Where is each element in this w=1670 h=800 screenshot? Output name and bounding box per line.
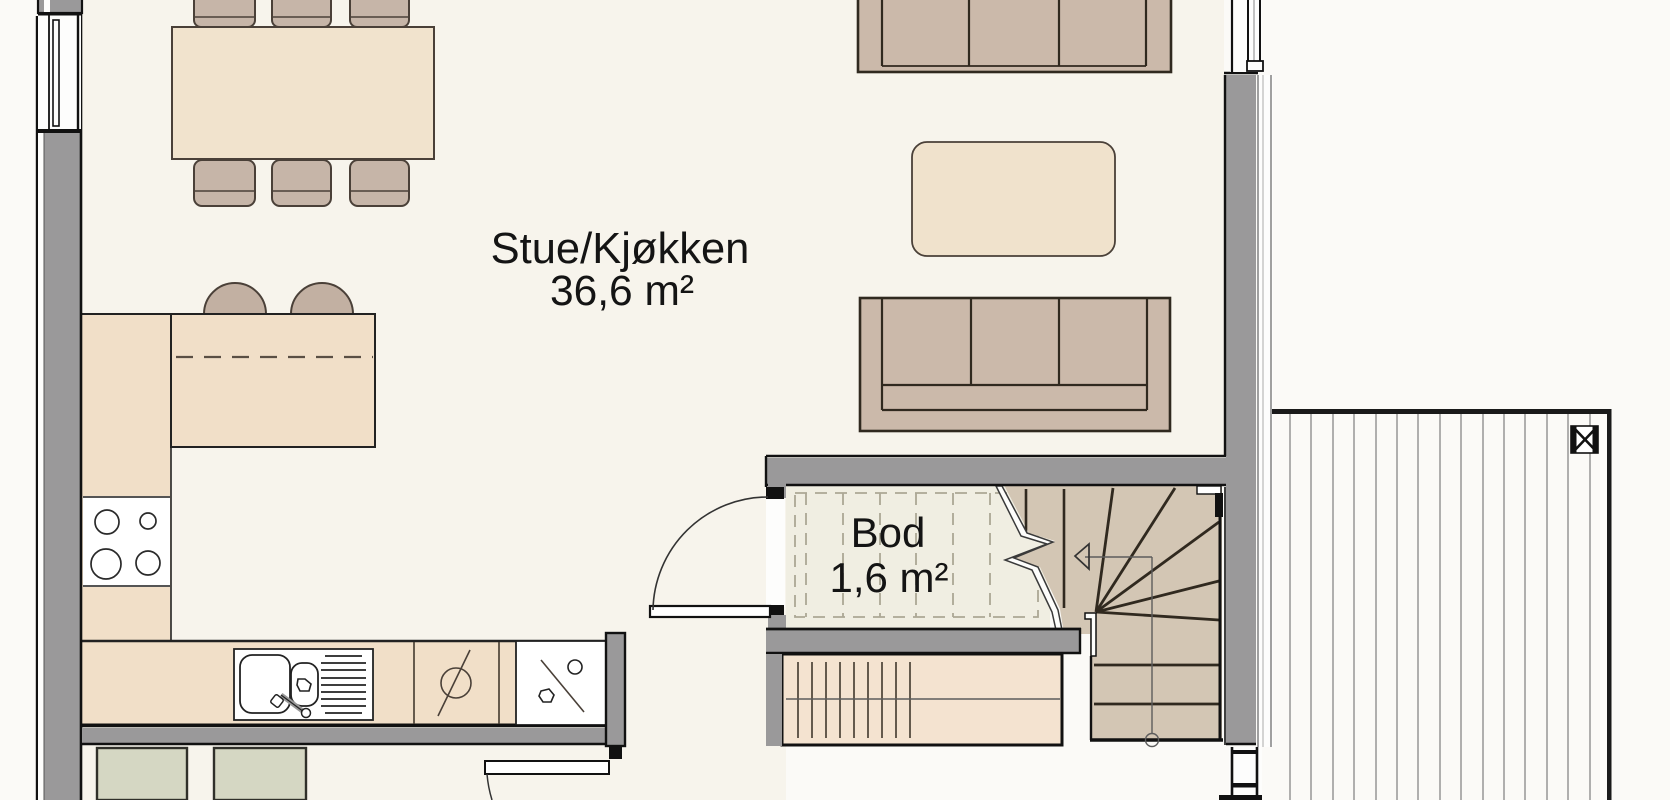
svg-text:1,6 m²: 1,6 m² (829, 554, 948, 601)
svg-text:Stue/Kjøkken: Stue/Kjøkken (491, 225, 750, 273)
svg-text:Bod: Bod (851, 509, 926, 556)
svg-text:36,6 m²: 36,6 m² (550, 268, 694, 315)
